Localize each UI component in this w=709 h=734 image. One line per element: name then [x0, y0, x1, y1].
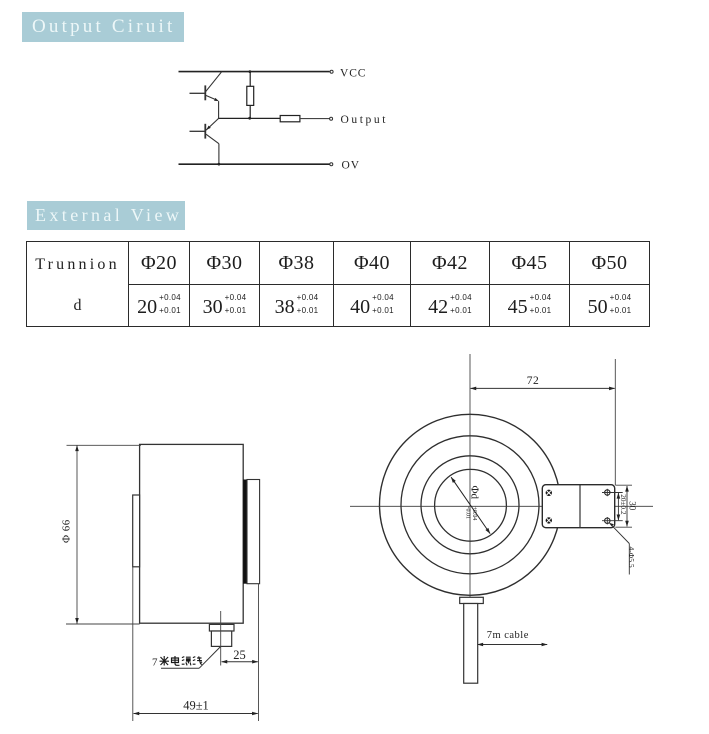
svg-text:Φ 66: Φ 66 [61, 519, 73, 543]
svg-text:Output: Output [341, 114, 389, 126]
svg-text:25: 25 [233, 648, 246, 662]
svg-text:72: 72 [527, 375, 540, 387]
svg-text:-0.01: -0.01 [465, 507, 471, 520]
svg-text:30: 30 [628, 501, 638, 511]
svg-text:7: 7 [152, 657, 158, 669]
svg-text:OV: OV [342, 160, 360, 172]
svg-text:49±1: 49±1 [183, 699, 209, 713]
svg-text:Φd: Φd [469, 486, 481, 500]
svg-text:7m cable: 7m cable [487, 630, 529, 641]
svg-text:+0.04: +0.04 [471, 507, 477, 521]
svg-text:4-Φ5.5: 4-Φ5.5 [627, 547, 636, 568]
svg-text:VCC: VCC [340, 67, 366, 79]
svg-text:20±0.2: 20±0.2 [619, 494, 627, 515]
